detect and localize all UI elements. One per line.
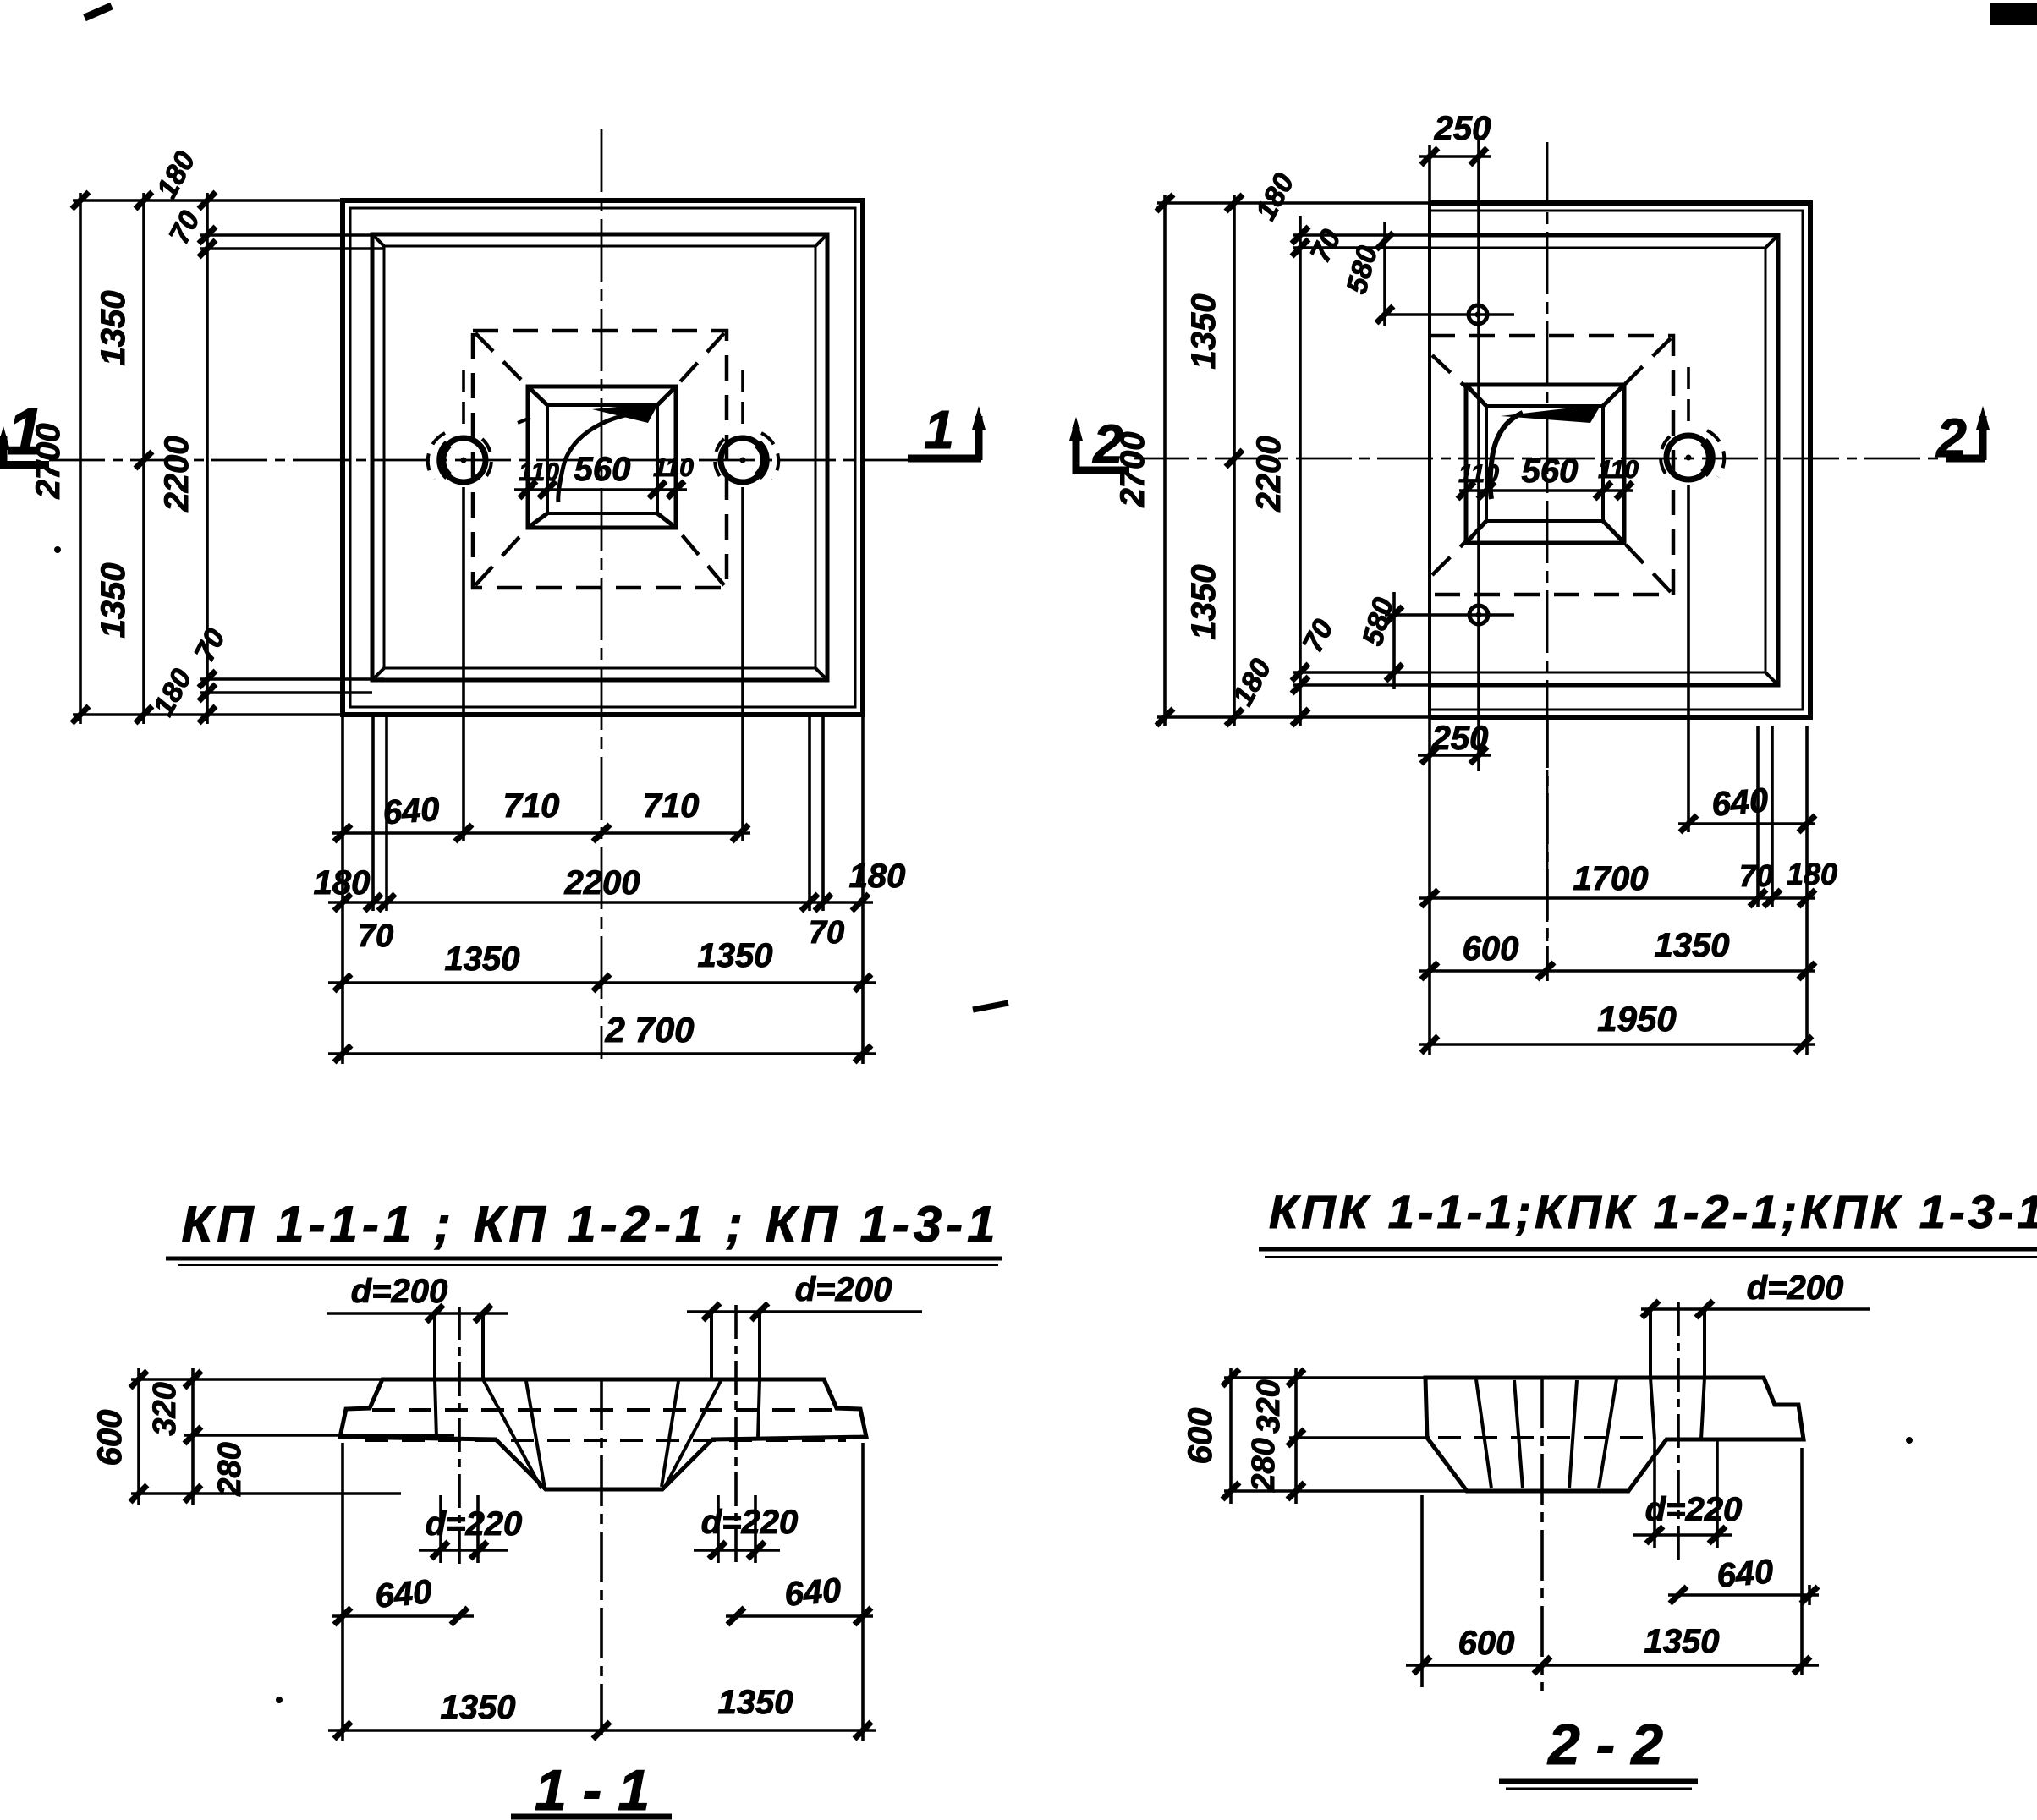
svg-text:1 - 1: 1 - 1	[535, 1758, 650, 1820]
svg-text:600: 600	[91, 1410, 129, 1466]
svg-text:1350: 1350	[1655, 927, 1730, 964]
svg-text:180: 180	[1249, 168, 1300, 226]
svg-text:1350: 1350	[95, 291, 132, 366]
svg-text:1950: 1950	[1597, 999, 1676, 1039]
svg-text:2200: 2200	[1250, 436, 1288, 513]
svg-text:2200: 2200	[158, 436, 195, 513]
svg-text:110: 110	[653, 454, 694, 482]
svg-text:110: 110	[1598, 456, 1639, 484]
svg-text:180: 180	[147, 664, 198, 721]
svg-text:КПК 1-1-1;КПК 1-2-1;КПК 1-3-1: КПК 1-1-1;КПК 1-2-1;КПК 1-3-1	[1269, 1185, 2037, 1238]
svg-text:280: 280	[1246, 1438, 1282, 1492]
svg-text:70: 70	[189, 623, 232, 666]
svg-text:180: 180	[849, 858, 906, 895]
svg-text:640: 640	[382, 791, 441, 832]
svg-text:600: 600	[1463, 930, 1519, 968]
svg-text:1350: 1350	[698, 937, 773, 974]
svg-text:1350: 1350	[95, 563, 132, 639]
svg-text:1: 1	[924, 399, 954, 460]
svg-text:600: 600	[1182, 1408, 1219, 1465]
svg-text:2700: 2700	[1114, 432, 1151, 508]
svg-text:2700: 2700	[30, 424, 67, 500]
svg-text:280: 280	[212, 1442, 248, 1496]
svg-text:110: 110	[519, 458, 559, 486]
svg-text:710: 710	[503, 787, 560, 825]
svg-text:1350: 1350	[441, 1689, 516, 1726]
svg-text:640: 640	[374, 1573, 433, 1615]
svg-text:710: 710	[643, 787, 700, 825]
svg-text:d=200: d=200	[351, 1273, 448, 1310]
svg-text:1350: 1350	[1185, 294, 1222, 370]
svg-text:d=220: d=220	[701, 1504, 799, 1541]
svg-text:640: 640	[1716, 1553, 1775, 1595]
svg-text:70: 70	[1739, 858, 1773, 893]
svg-text:580: 580	[1341, 243, 1384, 298]
svg-text:320: 320	[147, 1382, 183, 1435]
svg-text:70: 70	[1304, 224, 1348, 267]
svg-text:70: 70	[1297, 614, 1340, 657]
svg-text:2 - 2: 2 - 2	[1546, 1713, 1663, 1777]
svg-text:320: 320	[1251, 1379, 1287, 1433]
svg-text:250: 250	[1434, 110, 1491, 147]
svg-text:70: 70	[809, 915, 844, 951]
svg-text:180: 180	[1787, 857, 1837, 891]
svg-text:1350: 1350	[1185, 565, 1222, 640]
svg-text:2200: 2200	[564, 864, 640, 902]
svg-text:1350: 1350	[718, 1684, 793, 1721]
svg-text:1700: 1700	[1573, 860, 1649, 897]
svg-text:180: 180	[314, 864, 371, 902]
svg-text:2 700: 2 700	[604, 1010, 694, 1050]
svg-text:КП 1-1-1 ; КП 1-2-1 ; КП 1-3-1: КП 1-1-1 ; КП 1-2-1 ; КП 1-3-1	[182, 1196, 1000, 1253]
svg-text:d=200: d=200	[1747, 1269, 1844, 1307]
svg-text:d=220: d=220	[1645, 1491, 1743, 1528]
svg-text:70: 70	[358, 918, 393, 954]
svg-text:2: 2	[1935, 408, 1967, 469]
svg-text:640: 640	[1710, 781, 1770, 824]
svg-text:250: 250	[1431, 720, 1489, 757]
svg-text:d=200: d=200	[795, 1271, 892, 1308]
svg-text:1350: 1350	[1644, 1623, 1720, 1660]
svg-text:1350: 1350	[445, 940, 520, 978]
svg-text:180: 180	[151, 146, 201, 204]
svg-text:640: 640	[783, 1571, 843, 1614]
svg-text:600: 600	[1458, 1625, 1515, 1662]
